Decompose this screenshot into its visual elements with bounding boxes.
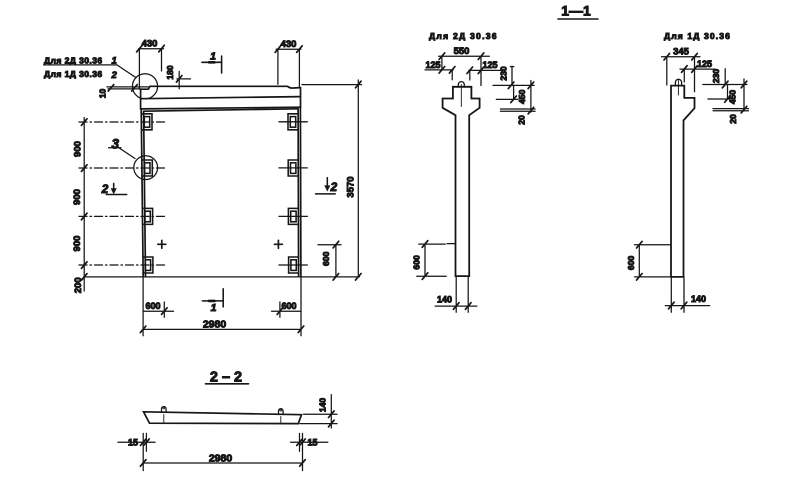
svg-text:600: 600 [145,301,160,311]
svg-text:2980: 2980 [203,319,227,331]
svg-text:430: 430 [142,39,158,50]
svg-text:600: 600 [281,301,296,311]
svg-text:345: 345 [673,47,690,58]
svg-text:1—1: 1—1 [561,3,591,19]
svg-text:3: 3 [111,137,119,152]
svg-text:230: 230 [498,66,508,81]
svg-text:140: 140 [437,295,452,305]
svg-text:Для 2Д 30.36: Для 2Д 30.36 [44,55,103,65]
svg-text:140: 140 [318,398,328,413]
svg-text:450: 450 [517,89,527,104]
svg-text:10: 10 [98,89,108,99]
svg-text:15: 15 [307,437,317,447]
svg-text:2: 2 [101,182,109,196]
svg-text:600: 600 [412,255,422,270]
svg-text:600: 600 [321,251,331,266]
svg-text:550: 550 [454,46,470,57]
svg-text:20: 20 [517,115,527,125]
svg-text:430: 430 [281,39,297,50]
svg-text:900: 900 [72,236,83,252]
svg-text:600: 600 [626,256,636,271]
svg-text:1: 1 [210,51,216,63]
svg-text:140: 140 [691,294,706,304]
svg-text:180: 180 [165,65,175,80]
svg-text:2980: 2980 [209,453,233,465]
svg-text:125: 125 [425,60,440,70]
svg-text:3570: 3570 [346,176,357,197]
svg-text:Для 2Д 30.36: Для 2Д 30.36 [429,31,498,41]
svg-text:125: 125 [482,60,497,70]
svg-text:20: 20 [728,114,738,124]
svg-text:2: 2 [329,180,337,194]
svg-text:450: 450 [727,90,737,105]
svg-text:Для 1Д 30.36: Для 1Д 30.36 [664,31,731,41]
svg-text:125: 125 [697,59,712,69]
svg-text:1: 1 [211,302,217,314]
svg-text:2: 2 [111,70,118,81]
svg-text:200: 200 [73,277,84,293]
svg-text:Для 1Д 30.36: Для 1Д 30.36 [44,69,103,79]
svg-text:15: 15 [128,437,138,447]
svg-text:900: 900 [72,189,83,205]
svg-text:230: 230 [711,69,721,84]
svg-text:1: 1 [112,56,117,67]
svg-text:900: 900 [73,141,84,157]
